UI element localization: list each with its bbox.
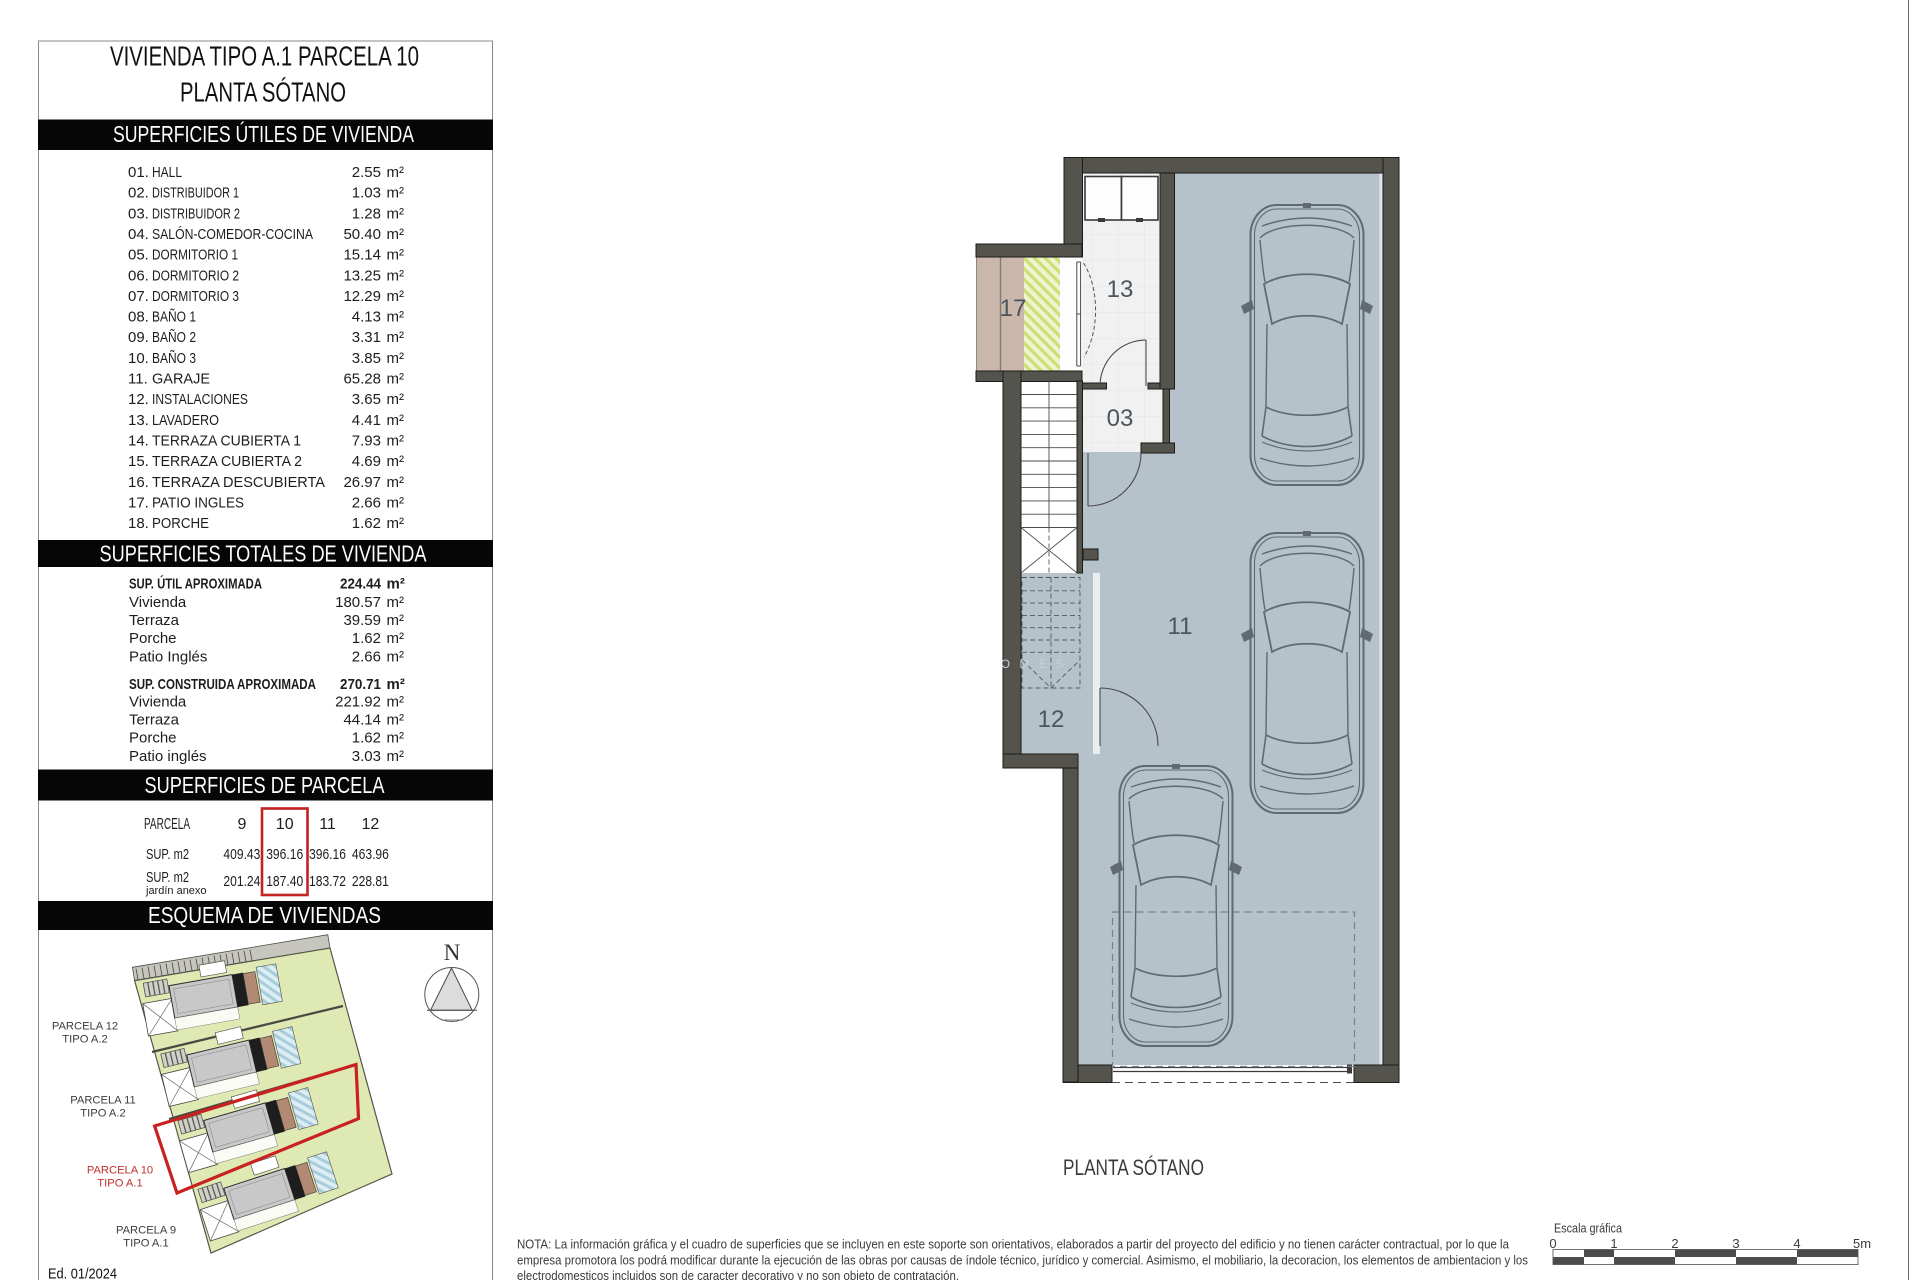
svg-text:m²: m² — [387, 630, 405, 647]
svg-text:10.: 10. — [128, 350, 149, 367]
svg-text:m²: m² — [387, 453, 405, 470]
svg-text:3.65: 3.65 — [352, 391, 381, 408]
svg-text:m²: m² — [387, 576, 405, 593]
svg-text:m²: m² — [387, 433, 405, 450]
svg-text:15.: 15. — [128, 453, 149, 470]
svg-text:SUPERFICIES ÚTILES DE VIVIENDA: SUPERFICIES ÚTILES DE VIVIENDA — [113, 121, 415, 147]
svg-text:187.40: 187.40 — [266, 873, 303, 890]
svg-text:SALÓN-COMEDOR-COCINA: SALÓN-COMEDOR-COCINA — [152, 226, 313, 243]
svg-text:PLANTA SÓTANO: PLANTA SÓTANO — [180, 77, 346, 108]
svg-text:electrodomesticos incluidos so: electrodomesticos incluidos son de carac… — [517, 1268, 959, 1280]
svg-text:7.93: 7.93 — [352, 433, 381, 450]
svg-text:10: 10 — [276, 816, 294, 833]
svg-text:BAÑO 2: BAÑO 2 — [152, 329, 196, 346]
svg-text:17: 17 — [1000, 295, 1027, 322]
svg-text:SUP. m2: SUP. m2 — [146, 869, 189, 886]
svg-text:14.: 14. — [128, 433, 149, 450]
svg-text:jardín anexo: jardín anexo — [145, 885, 207, 897]
svg-text:1.03: 1.03 — [352, 185, 381, 202]
svg-text:50.40: 50.40 — [343, 226, 381, 243]
svg-text:PLANTA SÓTANO: PLANTA SÓTANO — [1063, 1155, 1204, 1180]
svg-text:m²: m² — [387, 649, 405, 666]
svg-text:4.13: 4.13 — [352, 309, 381, 326]
svg-text:BAÑO 1: BAÑO 1 — [152, 309, 196, 326]
svg-text:m²: m² — [387, 205, 405, 222]
svg-text:12.: 12. — [128, 391, 149, 408]
svg-text:m²: m² — [387, 267, 405, 284]
svg-text:39.59: 39.59 — [343, 612, 381, 629]
svg-text:65.28: 65.28 — [343, 371, 381, 388]
svg-text:m²: m² — [387, 185, 405, 202]
svg-text:03.: 03. — [128, 205, 149, 222]
svg-text:PARCELA 10: PARCELA 10 — [87, 1165, 153, 1177]
svg-text:m²: m² — [387, 474, 405, 491]
svg-text:5m: 5m — [1853, 1236, 1871, 1251]
svg-text:DISTRIBUIDOR 2: DISTRIBUIDOR 2 — [152, 205, 240, 222]
svg-text:m²: m² — [387, 748, 405, 765]
svg-text:O M E S: O M E S — [1001, 659, 1067, 671]
svg-text:Porche: Porche — [129, 730, 177, 747]
svg-text:Terraza: Terraza — [129, 612, 180, 629]
svg-text:180.57: 180.57 — [335, 594, 381, 611]
svg-text:26.97: 26.97 — [343, 474, 381, 491]
svg-text:NOTA: La información gráfica y: NOTA: La información gráfica y el cuadro… — [517, 1237, 1510, 1252]
svg-text:PARCELA 12: PARCELA 12 — [52, 1021, 118, 1033]
svg-text:empresa promotora los podrá mo: empresa promotora los podrá modificar du… — [517, 1253, 1528, 1268]
svg-text:09.: 09. — [128, 329, 149, 346]
svg-text:9: 9 — [237, 816, 246, 833]
svg-text:4: 4 — [1793, 1236, 1800, 1251]
svg-text:3.85: 3.85 — [352, 350, 381, 367]
svg-text:m²: m² — [387, 288, 405, 305]
svg-text:GARAJE: GARAJE — [152, 371, 210, 388]
svg-text:Porche: Porche — [129, 630, 177, 647]
svg-text:409.43: 409.43 — [223, 846, 260, 863]
svg-text:m²: m² — [387, 329, 405, 346]
svg-text:05.: 05. — [128, 247, 149, 264]
svg-text:1.28: 1.28 — [352, 205, 381, 222]
svg-text:TERRAZA DESCUBIERTA: TERRAZA DESCUBIERTA — [152, 474, 325, 491]
svg-text:201.24: 201.24 — [223, 873, 260, 890]
svg-text:Ed. 01/2024: Ed. 01/2024 — [48, 1266, 117, 1280]
svg-text:PARCELA 9: PARCELA 9 — [116, 1225, 176, 1237]
svg-text:396.16: 396.16 — [309, 846, 346, 863]
svg-text:12.29: 12.29 — [343, 288, 381, 305]
svg-text:Vivienda: Vivienda — [129, 594, 187, 611]
svg-text:m²: m² — [387, 594, 405, 611]
svg-text:3: 3 — [1732, 1236, 1739, 1251]
svg-text:12: 12 — [362, 816, 380, 833]
svg-text:06.: 06. — [128, 267, 149, 284]
svg-text:Escala gráfica: Escala gráfica — [1554, 1221, 1623, 1236]
svg-text:SUPERFICIES DE PARCELA: SUPERFICIES DE PARCELA — [145, 772, 386, 798]
svg-text:396.16: 396.16 — [266, 846, 303, 863]
svg-text:Patio inglés: Patio inglés — [129, 748, 207, 765]
svg-text:TIPO A.2: TIPO A.2 — [62, 1034, 107, 1046]
svg-text:ESQUEMA DE VIVIENDAS: ESQUEMA DE VIVIENDAS — [148, 902, 381, 928]
svg-text:PARCELA 11: PARCELA 11 — [70, 1095, 136, 1107]
svg-text:2.66: 2.66 — [352, 494, 381, 511]
svg-text:LAVADERO: LAVADERO — [152, 412, 219, 429]
svg-text:1: 1 — [1610, 1236, 1617, 1251]
svg-text:01.: 01. — [128, 164, 149, 181]
svg-text:12: 12 — [1038, 706, 1065, 733]
svg-text:HALL: HALL — [152, 164, 182, 181]
svg-text:TIPO A.2: TIPO A.2 — [80, 1108, 125, 1120]
svg-text:1.62: 1.62 — [352, 630, 381, 647]
svg-text:2.55: 2.55 — [352, 164, 381, 181]
svg-text:270.71: 270.71 — [340, 676, 381, 693]
svg-text:SUP. ÚTIL APROXIMADA: SUP. ÚTIL APROXIMADA — [129, 575, 262, 593]
svg-text:221.92: 221.92 — [335, 694, 381, 711]
svg-text:m²: m² — [387, 730, 405, 747]
svg-text:02.: 02. — [128, 185, 149, 202]
svg-text:m²: m² — [387, 412, 405, 429]
svg-text:m²: m² — [387, 712, 405, 729]
svg-text:0: 0 — [1549, 1236, 1556, 1251]
svg-text:m²: m² — [387, 694, 405, 711]
svg-text:m²: m² — [387, 226, 405, 243]
svg-text:DORMITORIO 1: DORMITORIO 1 — [152, 247, 238, 264]
svg-text:08.: 08. — [128, 309, 149, 326]
svg-text:228.81: 228.81 — [352, 873, 389, 890]
svg-text:224.44: 224.44 — [340, 576, 382, 593]
svg-text:3.03: 3.03 — [352, 748, 381, 765]
svg-text:Vivienda: Vivienda — [129, 694, 187, 711]
svg-text:15.14: 15.14 — [343, 247, 381, 264]
svg-text:463.96: 463.96 — [352, 846, 389, 863]
svg-text:13.: 13. — [128, 412, 149, 429]
svg-text:TIPO A.1: TIPO A.1 — [123, 1238, 168, 1250]
svg-text:18.: 18. — [128, 515, 149, 532]
svg-text:13: 13 — [1107, 276, 1134, 303]
svg-text:DORMITORIO 3: DORMITORIO 3 — [152, 288, 239, 305]
svg-text:TERRAZA CUBIERTA 1: TERRAZA CUBIERTA 1 — [152, 433, 301, 450]
svg-text:BAÑO 3: BAÑO 3 — [152, 350, 196, 367]
svg-text:TIPO A.1: TIPO A.1 — [97, 1178, 142, 1190]
svg-text:1.62: 1.62 — [352, 730, 381, 747]
svg-text:Patio Inglés: Patio Inglés — [129, 649, 207, 666]
svg-text:SUP. m2: SUP. m2 — [146, 846, 189, 863]
svg-text:m²: m² — [387, 494, 405, 511]
svg-text:11: 11 — [1168, 613, 1193, 640]
svg-text:Terraza: Terraza — [129, 712, 180, 729]
svg-text:m²: m² — [387, 612, 405, 629]
svg-text:DORMITORIO 2: DORMITORIO 2 — [152, 267, 239, 284]
svg-text:44.14: 44.14 — [343, 712, 381, 729]
svg-text:183.72: 183.72 — [309, 873, 346, 890]
svg-text:13.25: 13.25 — [343, 267, 381, 284]
svg-text:m²: m² — [387, 247, 405, 264]
svg-text:07.: 07. — [128, 288, 149, 305]
svg-text:11.: 11. — [128, 371, 148, 388]
svg-text:SUP. CONSTRUIDA APROXIMADA: SUP. CONSTRUIDA APROXIMADA — [129, 676, 316, 693]
svg-text:m²: m² — [387, 350, 405, 367]
svg-text:PATIO INGLES: PATIO INGLES — [152, 494, 244, 511]
svg-text:TERRAZA CUBIERTA 2: TERRAZA CUBIERTA 2 — [152, 453, 302, 470]
svg-text:17.: 17. — [128, 494, 149, 511]
svg-text:m²: m² — [387, 309, 405, 326]
svg-text:DISTRIBUIDOR 1: DISTRIBUIDOR 1 — [152, 185, 239, 202]
svg-text:2.66: 2.66 — [352, 649, 381, 666]
svg-text:VIVIENDA TIPO A.1 PARCELA 10: VIVIENDA TIPO A.1 PARCELA 10 — [110, 41, 419, 72]
svg-text:m²: m² — [387, 391, 405, 408]
svg-text:04.: 04. — [128, 226, 149, 243]
svg-text:PARCELA: PARCELA — [144, 816, 190, 833]
svg-text:SUPERFICIES TOTALES DE VIVIEND: SUPERFICIES TOTALES DE VIVIENDA — [100, 541, 428, 567]
svg-text:m²: m² — [387, 371, 405, 388]
svg-text:N: N — [444, 940, 461, 965]
svg-text:PORCHE: PORCHE — [152, 515, 209, 532]
svg-text:m²: m² — [387, 164, 405, 181]
svg-text:03: 03 — [1107, 405, 1134, 432]
svg-text:1.62: 1.62 — [352, 515, 381, 532]
svg-text:4.69: 4.69 — [352, 453, 381, 470]
svg-text:m²: m² — [387, 515, 405, 532]
svg-text:16.: 16. — [128, 474, 149, 491]
svg-text:3.31: 3.31 — [352, 329, 381, 346]
svg-text:INSTALACIONES: INSTALACIONES — [152, 391, 248, 408]
svg-text:11: 11 — [319, 816, 336, 833]
svg-text:2: 2 — [1671, 1236, 1678, 1251]
svg-text:4.41: 4.41 — [352, 412, 381, 429]
svg-text:m²: m² — [387, 676, 405, 693]
